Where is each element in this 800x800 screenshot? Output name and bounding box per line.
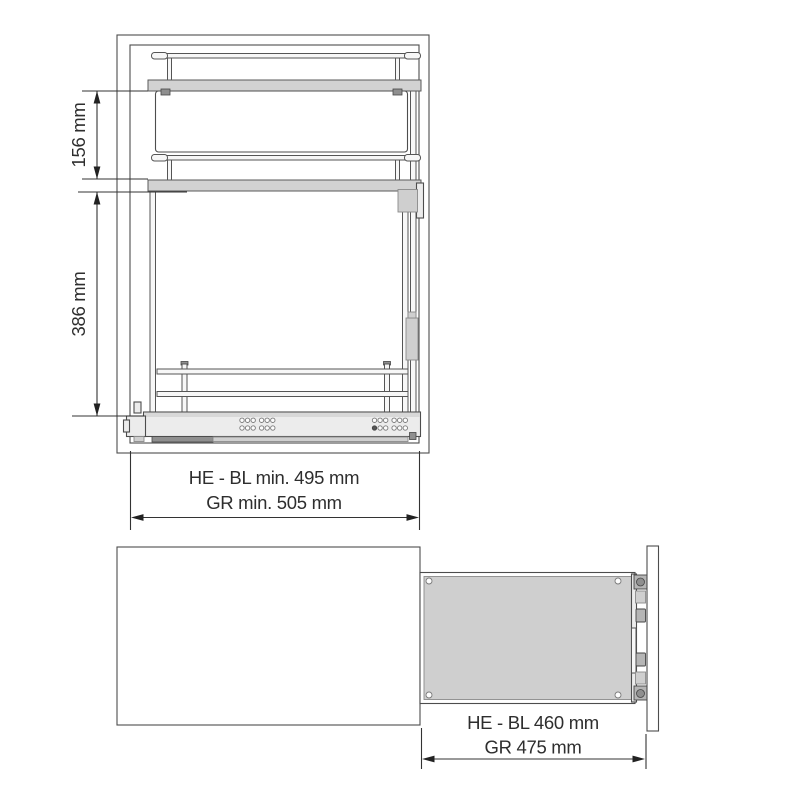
dimension-width: HE - BL min. 495 mm GR min. 505 mm bbox=[131, 451, 420, 530]
column-fitting-cap bbox=[408, 312, 416, 318]
front-view: 156 mm 386 mm HE - BL min. 495 mm GR min… bbox=[68, 35, 429, 530]
bracket-tab bbox=[124, 420, 130, 432]
top-view: HE - BL 460 mm GR 475 mm bbox=[117, 546, 659, 769]
rail-upper bbox=[157, 369, 408, 374]
drawer-slide bbox=[124, 402, 421, 442]
dim-label-depth-line1: HE - BL 460 mm bbox=[467, 712, 599, 733]
arrowhead-down bbox=[94, 404, 101, 417]
dim-label-156: 156 mm bbox=[68, 102, 89, 167]
rail-post-left bbox=[168, 160, 172, 181]
slide-top-band bbox=[144, 413, 420, 418]
front-mounting-hardware bbox=[632, 574, 648, 702]
rail-end-cap-left bbox=[152, 53, 168, 60]
technical-diagram: 156 mm 386 mm HE - BL min. 495 mm GR min… bbox=[0, 0, 800, 800]
fixing-screw-bottom bbox=[637, 690, 645, 698]
rail-post-right bbox=[396, 58, 400, 81]
latch-center bbox=[632, 628, 637, 673]
corner-screw bbox=[426, 578, 432, 584]
left-column bbox=[150, 191, 156, 413]
shelf-board bbox=[148, 80, 421, 91]
fixing-screw-top bbox=[637, 578, 645, 586]
arrowhead-up bbox=[94, 192, 101, 205]
rail-end-cap-right bbox=[405, 53, 421, 60]
dim-label-width-line1: HE - BL min. 495 mm bbox=[189, 467, 359, 488]
arrowhead-up bbox=[94, 91, 101, 104]
rail-end-cap-right bbox=[405, 155, 421, 162]
slide-front-bracket bbox=[124, 402, 146, 442]
arrowhead-left bbox=[422, 756, 435, 763]
bracket-post bbox=[134, 402, 141, 413]
bracket-knob bbox=[398, 190, 418, 213]
dimension-386: 386 mm bbox=[68, 192, 187, 416]
shelf-board bbox=[148, 180, 421, 191]
gallery-rail bbox=[160, 156, 412, 161]
dimension-156: 156 mm bbox=[68, 91, 148, 179]
tray-side bbox=[156, 91, 408, 152]
slide-runner-light bbox=[213, 437, 408, 442]
clip-top bbox=[636, 609, 646, 622]
rail-post-right bbox=[396, 160, 400, 181]
cabinet-top-outline bbox=[117, 547, 420, 725]
arrowhead-right bbox=[633, 756, 646, 763]
bracket-foot bbox=[134, 437, 144, 442]
right-rear-column bbox=[411, 85, 417, 413]
rail-post-left bbox=[168, 58, 172, 81]
diagram-page: 156 mm 386 mm HE - BL min. 495 mm GR min… bbox=[0, 0, 800, 800]
platform-surface bbox=[424, 577, 632, 700]
dim-label-depth-line2: GR 475 mm bbox=[484, 737, 581, 758]
corner-screw bbox=[615, 692, 621, 698]
dim-label-width-line2: GR min. 505 mm bbox=[206, 492, 342, 513]
adapter-bottom bbox=[636, 672, 646, 684]
dimension-depth: HE - BL 460 mm GR 475 mm bbox=[422, 712, 647, 769]
front-panel bbox=[647, 546, 659, 731]
arrowhead-down bbox=[94, 167, 101, 180]
tray-clip-left bbox=[161, 89, 170, 95]
rail-end-cap-left bbox=[152, 155, 168, 162]
corner-screw bbox=[615, 578, 621, 584]
dim-label-386: 386 mm bbox=[68, 271, 89, 336]
basket-2 bbox=[148, 155, 421, 192]
slide-rear-stop bbox=[410, 433, 417, 440]
drawer-platform bbox=[420, 573, 635, 704]
clip-bottom bbox=[636, 653, 646, 666]
arrowhead-left bbox=[131, 514, 144, 521]
tray-clip-right bbox=[393, 89, 402, 95]
arrowhead-right bbox=[407, 514, 420, 521]
gallery-rail bbox=[160, 54, 412, 59]
column-fitting bbox=[406, 318, 418, 360]
corner-screw bbox=[426, 692, 432, 698]
lower-gallery-rails bbox=[157, 362, 408, 414]
rail-lower bbox=[157, 392, 408, 397]
slide-runner-dark bbox=[152, 437, 213, 443]
basket-1 bbox=[148, 53, 421, 153]
adapter-top bbox=[636, 591, 646, 603]
right-front-column bbox=[403, 191, 409, 413]
